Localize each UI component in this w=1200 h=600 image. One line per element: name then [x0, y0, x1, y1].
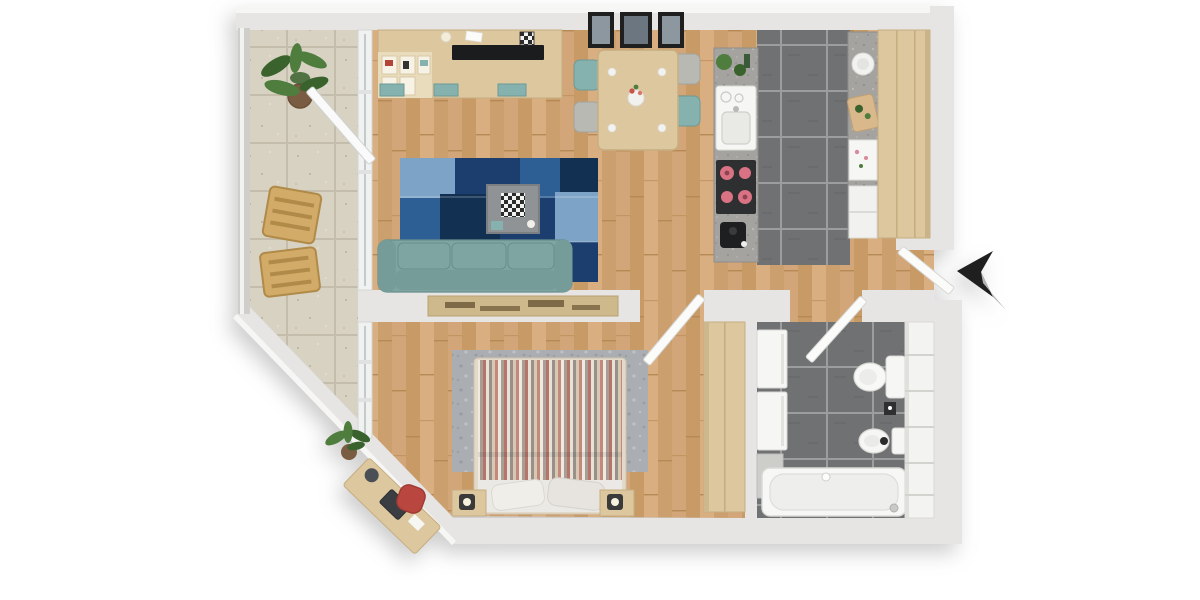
living-window-mullion: [358, 90, 372, 94]
dining-table: [598, 50, 678, 150]
living-window-mullion2: [358, 170, 372, 174]
teal-drawer-1: [380, 84, 404, 96]
bedroom-window-mullion: [358, 360, 372, 364]
wall-bottom: [450, 518, 962, 544]
sofa: [378, 240, 572, 292]
bathtub-faucet: [890, 504, 898, 512]
burner-2: [739, 167, 751, 179]
sofa-cushion-1: [398, 243, 450, 269]
kitchen-counter-left: [714, 48, 758, 262]
entrance-arrow-icon: [957, 251, 1006, 310]
faucet: [733, 106, 739, 112]
dining-chair-left-2: [574, 102, 600, 132]
kitchen-sink: [716, 86, 756, 150]
burner-3: [721, 191, 733, 203]
unit-chessboard-decor: [520, 32, 534, 45]
wall-bedroom-stub: [704, 290, 757, 322]
media-wall-unit: [378, 30, 562, 98]
bidet-faucet: [880, 437, 888, 445]
green-bottle: [744, 54, 750, 68]
bathtub: [762, 468, 906, 516]
unit-paper: [465, 31, 482, 42]
teal-drawer-2: [434, 84, 458, 96]
herb-plant-1: [716, 54, 732, 70]
bathtub-drain: [822, 473, 830, 481]
nightstand-right: [600, 490, 634, 516]
coffee-cup: [741, 241, 747, 247]
bathroom-shelving-unit: [905, 322, 934, 518]
bedroom-window-mullion2: [358, 398, 372, 402]
flower-pink: [638, 91, 642, 95]
floor-plan-image: [0, 0, 1200, 600]
striped-duvet: [478, 360, 622, 480]
wall-bedroom-bathroom: [745, 322, 757, 518]
coffee-machine: [720, 222, 747, 248]
table-setting-3: [608, 124, 616, 132]
wardrobe: [704, 322, 745, 512]
teal-drawer-3: [498, 84, 526, 96]
sofa-backrest: [396, 270, 556, 290]
flower-leaf: [634, 85, 639, 90]
unit-lamp: [441, 32, 451, 42]
sink-basin: [722, 112, 750, 144]
wall-right-lower: [934, 300, 962, 544]
balcony-railing-glass: [240, 28, 244, 314]
cooktop: [716, 160, 756, 214]
balcony-chair-lower: [260, 247, 321, 297]
shelf-red-book: [385, 60, 393, 66]
sofa-cushion-2: [452, 243, 506, 269]
balcony-chair-upper: [262, 186, 322, 244]
bathtub-basin: [770, 474, 898, 510]
wall-bathroom-left-stub: [757, 290, 790, 322]
chessboard: [501, 193, 525, 217]
wall-bathroom-right-stub: [862, 290, 935, 322]
coffee-table: [487, 185, 539, 233]
nightstand-left: [452, 490, 486, 516]
wall-top-highlight: [236, 6, 954, 13]
glazing: [358, 30, 372, 438]
shelf-dark-book: [403, 61, 409, 69]
table-cup: [527, 220, 535, 228]
table-setting-2: [658, 68, 666, 76]
bedroom-window-glass-line: [364, 326, 366, 434]
kitchen-counter-right: [847, 32, 880, 238]
duvet-fold: [478, 452, 622, 457]
tall-wood-cabinet: [878, 30, 930, 238]
kitchen-floor: [757, 30, 850, 265]
sofa-arm-left: [378, 240, 396, 292]
sofa-arm-right: [554, 240, 572, 292]
dining-chair-left-1: [574, 60, 600, 90]
table-setting-1: [608, 68, 616, 76]
bidet: [859, 428, 906, 454]
wall-right-upper: [930, 6, 954, 238]
flower-red: [629, 88, 634, 93]
apartment-floor-plan: [0, 0, 1200, 600]
sofa-cushion-3: [508, 243, 554, 269]
tv: [452, 45, 544, 60]
table-teal-cloth: [491, 221, 503, 230]
picture-2: [624, 16, 648, 44]
picture-1: [592, 16, 610, 44]
table-setting-4: [658, 124, 666, 132]
picture-3: [662, 16, 680, 44]
floral-cabinet: [849, 140, 877, 180]
shelf-teal-box: [420, 60, 428, 66]
